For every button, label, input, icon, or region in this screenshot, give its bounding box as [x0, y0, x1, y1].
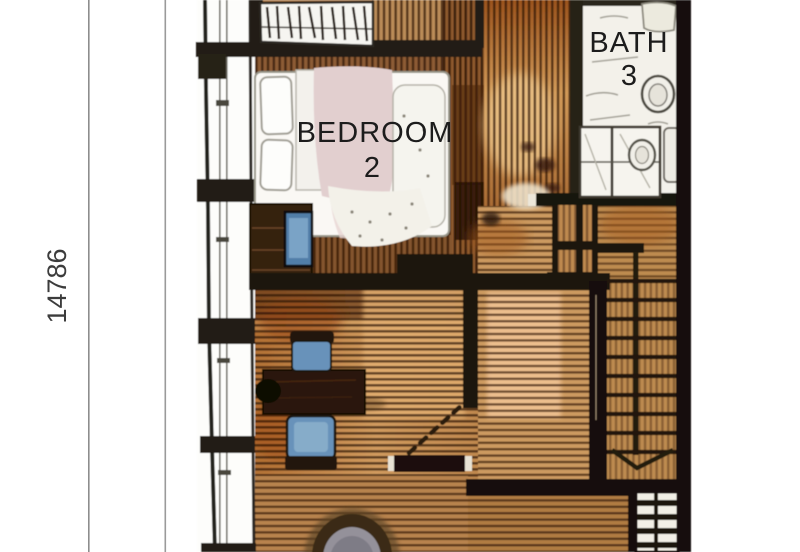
svg-text:BEDROOM: BEDROOM [297, 117, 454, 149]
svg-text:BATH: BATH [589, 27, 668, 59]
svg-text:3: 3 [621, 60, 637, 92]
svg-text:2: 2 [364, 152, 380, 184]
svg-text:14786: 14786 [42, 248, 72, 323]
